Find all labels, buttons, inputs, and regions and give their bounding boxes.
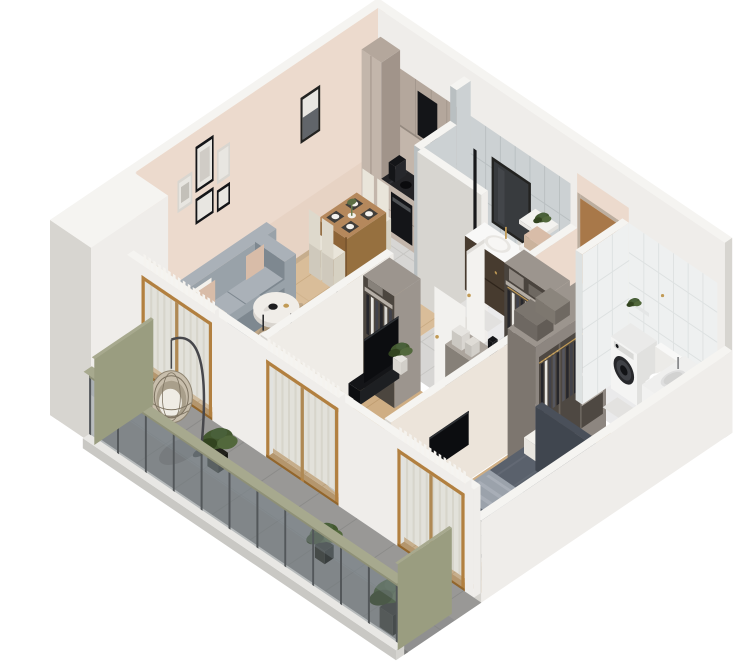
railing-post <box>396 582 398 643</box>
door-handle <box>467 294 471 298</box>
railing-post <box>201 450 203 511</box>
window-frame <box>397 448 400 548</box>
shower-column <box>473 148 476 240</box>
bath2-partition <box>576 250 583 405</box>
balcony-end-block <box>50 220 91 443</box>
railing-post <box>284 506 286 567</box>
towel-hook <box>661 294 664 297</box>
railing-post <box>229 468 231 529</box>
apartment-render-stage <box>0 0 750 671</box>
railing-post <box>145 412 147 473</box>
window-frame <box>266 359 269 459</box>
apartment-3d-floor-plan <box>0 0 750 671</box>
railing-post <box>340 544 342 605</box>
railing-post <box>312 525 314 586</box>
railing-post <box>173 431 175 492</box>
railing-post <box>256 487 258 548</box>
railing-post <box>89 374 91 435</box>
railing-post <box>368 563 370 624</box>
sw-wall <box>465 484 474 598</box>
